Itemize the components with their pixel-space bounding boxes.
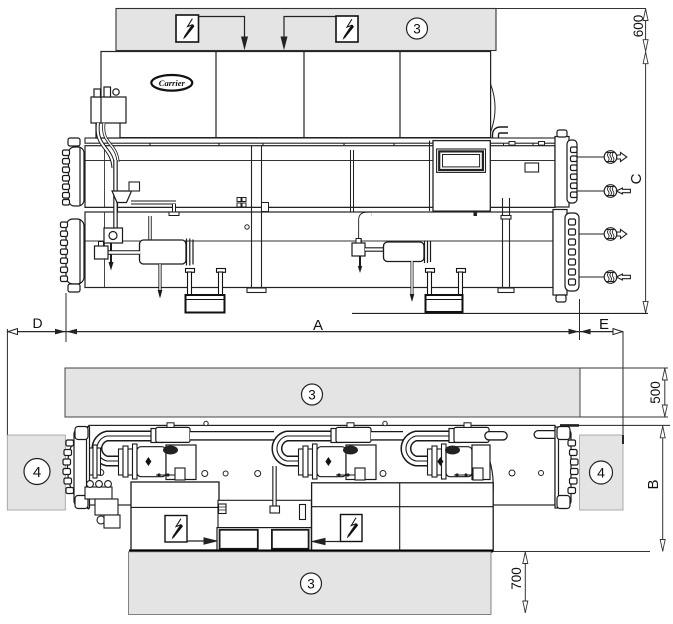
- svg-text:500: 500: [648, 381, 663, 404]
- svg-text:4: 4: [33, 464, 41, 481]
- svg-text:3: 3: [307, 576, 315, 591]
- svg-text:600: 600: [631, 15, 646, 38]
- svg-text:700: 700: [509, 567, 524, 590]
- svg-text:3: 3: [308, 387, 316, 402]
- svg-text:Carrier: Carrier: [159, 78, 186, 88]
- svg-text:3: 3: [413, 21, 421, 36]
- svg-text:4: 4: [597, 465, 605, 481]
- svg-text:E: E: [599, 316, 609, 333]
- svg-text:B: B: [645, 479, 662, 489]
- svg-text:D: D: [32, 315, 42, 331]
- svg-text:A: A: [313, 317, 323, 334]
- svg-text:C: C: [628, 173, 645, 184]
